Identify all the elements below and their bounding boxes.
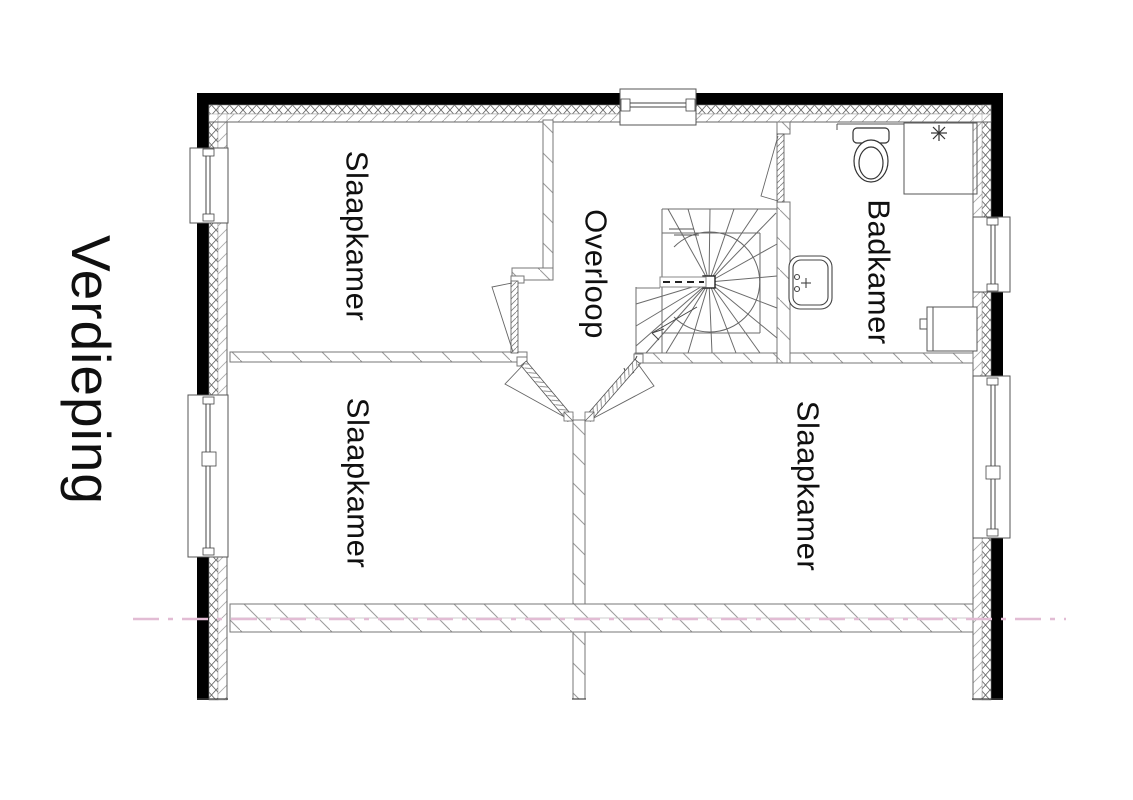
plan-title: Verdieping	[60, 235, 122, 505]
room-label-slaapkamer-top-left: Slaapkamer	[340, 151, 375, 321]
door-bottom-right-bedroom	[585, 359, 654, 421]
window-left-bottom	[188, 395, 228, 557]
floor-plan-page: Verdieping Slaapkamer Overloop Badkamer …	[0, 0, 1133, 800]
room-label-badkamer: Badkamer	[862, 199, 897, 344]
door-bottom-left-bedroom	[505, 361, 573, 421]
radiator-symbol	[920, 307, 977, 351]
window-right-bottom	[973, 376, 1010, 538]
window-top	[620, 89, 696, 125]
room-label-slaapkamer-bottom-right: Slaapkamer	[791, 401, 826, 571]
room-label-overloop: Overloop	[579, 209, 614, 339]
floor-plan-drawing: Verdieping Slaapkamer Overloop Badkamer …	[0, 0, 1133, 800]
toilet-symbol	[853, 128, 889, 182]
washbasin-symbol	[789, 256, 832, 309]
room-label-slaapkamer-bottom-left: Slaapkamer	[341, 398, 376, 568]
door-top-left-bedroom	[492, 281, 518, 353]
window-left-top	[190, 148, 228, 223]
door-bathroom	[761, 134, 784, 202]
window-right-top	[973, 217, 1010, 292]
staircase	[624, 209, 777, 377]
shower-symbol	[904, 123, 977, 194]
